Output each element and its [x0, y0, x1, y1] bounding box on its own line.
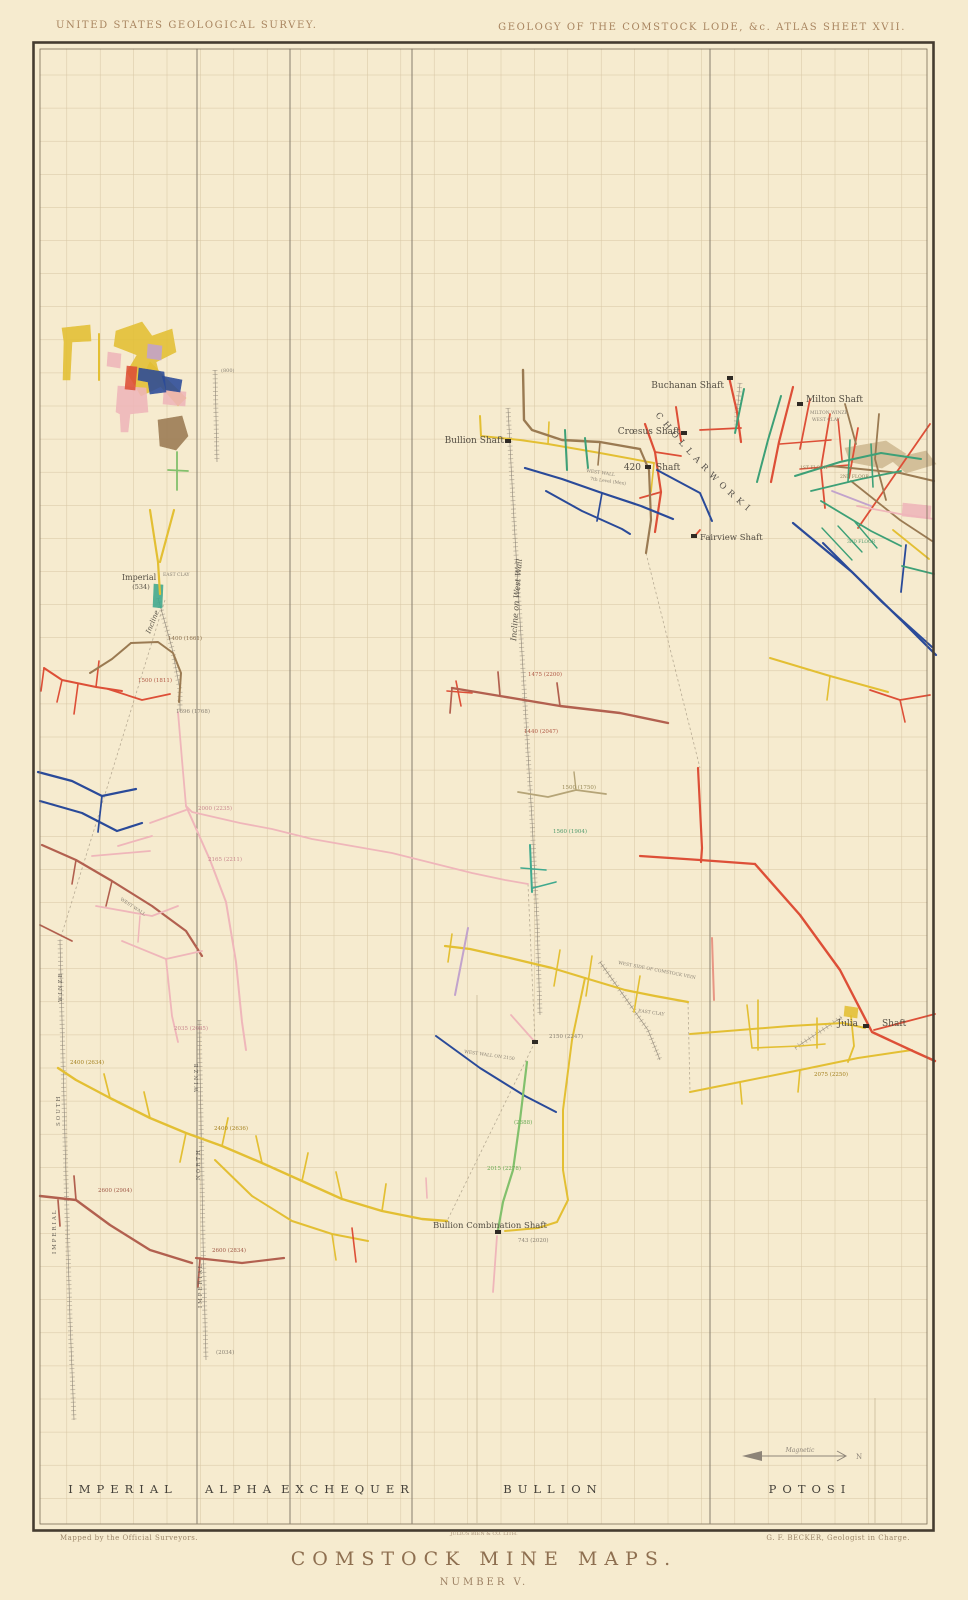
shaft-marker [691, 534, 697, 538]
map-label: 2600 (2904) [98, 1187, 132, 1194]
map-label: Bullion Combination Shaft [433, 1221, 547, 1231]
map-label: IMPERIAL [52, 1209, 58, 1254]
drift-line [827, 676, 830, 700]
map-label: (2388) [514, 1119, 532, 1126]
claim-name-exchequer: EXCHEQUER [281, 1482, 415, 1496]
map-label: 1500 (1811) [138, 677, 172, 684]
map-label: 2400 (2636) [214, 1125, 248, 1132]
map-label: WEST WALL ON 2150 [464, 1049, 515, 1062]
drift-line [900, 700, 905, 722]
map-label: 1560 (1904) [553, 828, 587, 835]
drift-line [90, 643, 131, 673]
magnetic-label: Magnetic [785, 1447, 815, 1454]
drift-line [845, 404, 856, 444]
claim-name-imperial: IMPERIAL [68, 1482, 178, 1496]
map-title: COMSTOCK MINE MAPS. [0, 1548, 968, 1570]
stope [62, 325, 91, 380]
drift-line [870, 690, 930, 700]
drift-line [505, 978, 585, 1231]
drift-line [771, 387, 793, 482]
drift-line [518, 790, 606, 797]
drift-line [493, 1236, 497, 1292]
drift-line [38, 772, 136, 796]
map-sheet: { "page": { "header_left": "UNITED STATE… [0, 0, 968, 1600]
map-label: Milton Shaft [806, 395, 863, 405]
drift-line [92, 851, 150, 856]
map-label: 2165 (2211) [208, 856, 242, 863]
drift-line [511, 1015, 535, 1042]
drift-line [40, 925, 72, 941]
drift-line [712, 938, 714, 1000]
shaft-marker [863, 1024, 869, 1028]
drift-line [448, 934, 452, 962]
drift-line [657, 470, 712, 521]
drift-line [598, 442, 600, 465]
map-label: 3RD FLOOR [847, 539, 876, 545]
drift-line [352, 1228, 356, 1262]
map-label: 2075 (2250) [814, 1071, 848, 1078]
drift-line [44, 668, 122, 691]
map-label: 1500 (1750) [562, 784, 596, 791]
stope [125, 366, 137, 390]
drift-line [138, 916, 140, 942]
drift-line [426, 1178, 427, 1198]
map-label: 2150 (2247) [549, 1033, 583, 1040]
drift-line [196, 1258, 284, 1263]
map-label: 2400 (2634) [70, 1059, 104, 1066]
map-label: 1400 (1661) [168, 635, 202, 642]
drift-line [144, 1092, 150, 1118]
shaft-marker [645, 465, 651, 469]
drift-line [456, 681, 461, 706]
map-label: 2ND FLOOR [840, 474, 869, 480]
map-label: MILTON WINZE [810, 410, 848, 416]
map-label: Buchanan Shaft [651, 381, 724, 391]
map-label: IMPERIAL [198, 1263, 204, 1308]
map-label: NORTH [196, 1148, 202, 1180]
claim-boundaries [197, 49, 875, 1524]
map-label: EAST CLAY [163, 572, 191, 578]
drift-line [222, 1118, 228, 1146]
map-label: Incline [144, 609, 161, 635]
map-label: 2000 (2235) [198, 805, 232, 812]
drift-line [72, 860, 76, 884]
drift-line [336, 1172, 342, 1199]
map-label: 1ST FLOOR [800, 465, 828, 471]
drift-line [96, 661, 99, 687]
map-labels: Buchanan ShaftMilton ShaftMILTON WINZEWE… [52, 367, 907, 1356]
drift-line [41, 668, 44, 691]
drift-line [498, 672, 500, 696]
incline-tracks [60, 370, 842, 1420]
drift-line [122, 941, 202, 959]
map-label: 1440 (2047) [524, 728, 558, 735]
stope [116, 386, 148, 432]
map-label: 2035 (2085) [174, 1025, 208, 1032]
drift-line [436, 1036, 556, 1112]
north-label: N [856, 1453, 862, 1461]
drift-line [640, 449, 651, 553]
map-subtitle: NUMBER V. [0, 1577, 968, 1588]
map-label: EAST CLAY [638, 1008, 666, 1018]
map-label: Imperial [122, 573, 157, 582]
claim-names: IMPERIALALPHAEXCHEQUERBULLIONPOTOSI [68, 1482, 851, 1496]
drift-line [150, 810, 186, 823]
drift-line [798, 1070, 800, 1092]
map-label: 420 [624, 463, 641, 473]
shaft-markers [495, 376, 869, 1234]
map-label: Shaft [882, 1019, 907, 1029]
drift-line [755, 864, 935, 1061]
drift-line [186, 806, 246, 1050]
map-label: Shaft [656, 463, 681, 473]
drift-line [533, 882, 556, 888]
map-border-inner [40, 49, 927, 1524]
map-label: WEST CLAY [812, 417, 841, 423]
map-label: (800) [221, 367, 234, 374]
mine-map: Buchanan ShaftMilton ShaftMILTON WINZEWE… [0, 0, 968, 1600]
drift-line [455, 928, 468, 995]
claim-name-bullion: BULLION [503, 1482, 602, 1496]
drift-line [780, 440, 831, 444]
drift-line [256, 1136, 262, 1163]
drift-line [521, 868, 546, 870]
stope [147, 344, 162, 360]
mine-workings [38, 334, 936, 1292]
map-label: (534) [132, 583, 150, 591]
drift-line [58, 1068, 447, 1221]
map-label: Fairview Shaft [700, 533, 763, 543]
drift-line [823, 543, 932, 647]
map-label: (2034) [216, 1349, 234, 1356]
map-label: Bullion Shaft [445, 436, 505, 446]
drift-line [74, 1176, 76, 1200]
map-label: Julia [836, 1019, 858, 1029]
shaft-marker [727, 376, 733, 380]
map-label: 743 (2020) [518, 1237, 549, 1244]
drift-line [640, 856, 755, 864]
drift-line [838, 419, 842, 460]
shaft-marker [797, 402, 803, 406]
stope [158, 416, 188, 450]
shaft-marker [505, 439, 511, 443]
drift-line [523, 370, 640, 449]
map-label: WINZE [194, 1062, 200, 1092]
drift-line [634, 976, 640, 1012]
drift-line [302, 1153, 308, 1181]
drift-line [565, 430, 567, 470]
drift-line [557, 683, 560, 706]
map-label: 1696 (1768) [176, 708, 210, 715]
drift-line [690, 1050, 912, 1092]
map-label: 2600 (2834) [212, 1247, 246, 1254]
stope [163, 390, 186, 406]
stope [153, 584, 163, 608]
geologist-credit: G. F. BECKER, Geologist in Charge. [766, 1534, 910, 1542]
drift-line [811, 471, 901, 491]
drift-line [382, 1184, 386, 1211]
drift-line [57, 680, 62, 702]
map-border-outer [34, 43, 934, 1531]
map-label: 2015 (2278) [487, 1165, 521, 1172]
drift-line [445, 946, 688, 1002]
shaft-marker [681, 431, 687, 435]
drift-line [40, 801, 142, 831]
drift-line [821, 414, 830, 508]
drift-line [902, 566, 934, 574]
north-arrow: MagneticN [742, 1447, 862, 1461]
drift-line [180, 1133, 186, 1162]
shaft-marker [532, 1040, 538, 1044]
map-label: Incline on West Wall [509, 558, 524, 642]
map-label: WEST SIDE OF COMSTOCK VEIN [618, 960, 697, 981]
claim-name-potosi: POTOSI [769, 1482, 852, 1496]
drift-line [586, 956, 592, 996]
map-label: SOUTH [56, 1095, 62, 1126]
map-label: WINZE [58, 972, 64, 1002]
survey-grid [40, 49, 928, 1524]
drift-line [651, 463, 654, 492]
drift-line [40, 1196, 192, 1263]
map-label: 1475 (2200) [528, 671, 562, 678]
drift-line [740, 1082, 742, 1104]
drift-line [168, 470, 188, 471]
stope [107, 352, 121, 368]
drift-line [58, 1200, 60, 1226]
drift-line [118, 836, 152, 846]
drift-line [74, 684, 78, 714]
claim-name-alpha: ALPHA [204, 1482, 277, 1496]
drift-line [548, 422, 549, 444]
